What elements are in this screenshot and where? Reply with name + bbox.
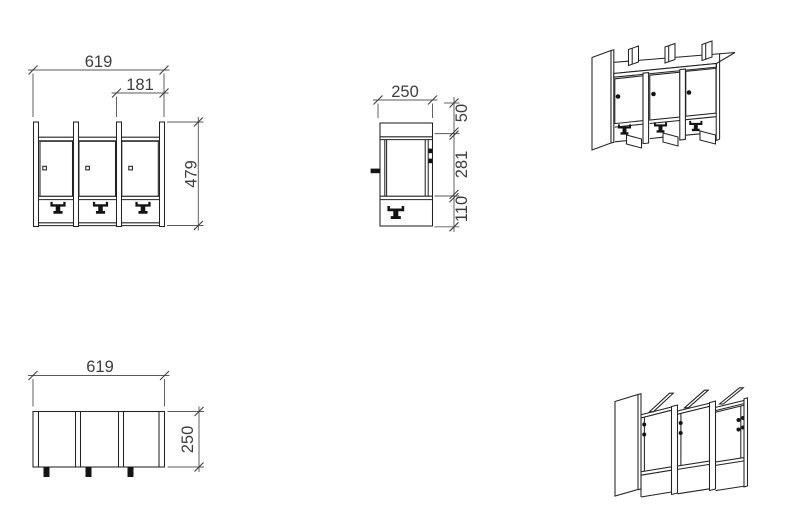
coat-hook-glyph bbox=[93, 202, 108, 214]
mount-bracket bbox=[44, 467, 50, 477]
divider-panel bbox=[710, 401, 716, 490]
hinge-dot bbox=[642, 433, 646, 437]
door-knob-side bbox=[371, 169, 381, 174]
mount-bracket bbox=[128, 467, 134, 477]
mount-bracket bbox=[86, 467, 92, 477]
side-panel-iso bbox=[592, 51, 611, 151]
hinge-dot bbox=[737, 428, 741, 432]
hinge-dot bbox=[679, 431, 683, 435]
dim-text-side-top: 50 bbox=[453, 104, 471, 122]
dim-side-chain: 50 281 110 bbox=[435, 97, 471, 232]
door-panel bbox=[122, 141, 159, 196]
dim-text-side-depth: 250 bbox=[391, 83, 419, 101]
side-panel-iso bbox=[615, 395, 638, 497]
door-knob bbox=[86, 166, 90, 170]
door-panel bbox=[678, 406, 710, 466]
iso-view-bottom[interactable] bbox=[615, 388, 748, 497]
door-panel bbox=[641, 410, 672, 472]
divider-fin bbox=[650, 388, 744, 412]
dim-text-side-bottom: 110 bbox=[453, 196, 471, 222]
side-panel bbox=[34, 122, 39, 227]
dim-plan-depth: 250 bbox=[168, 407, 205, 473]
front-view[interactable]: 619 181 479 bbox=[28, 53, 204, 231]
hinge-dot bbox=[642, 423, 646, 427]
divider-panel bbox=[643, 73, 649, 144]
hinge-dot bbox=[737, 418, 741, 422]
door-knob bbox=[616, 94, 621, 99]
dim-text-front-width: 619 bbox=[85, 53, 113, 71]
door-knob bbox=[129, 166, 133, 170]
coat-hook-glyph bbox=[654, 122, 667, 132]
plan-view[interactable]: 619 250 bbox=[28, 358, 204, 477]
coat-hook-glyph bbox=[135, 202, 150, 214]
drawing-svg: 619 181 479 bbox=[0, 0, 812, 508]
dim-text-front-bay: 181 bbox=[126, 76, 154, 94]
hinge-dot bbox=[429, 149, 432, 154]
door-panel bbox=[716, 404, 748, 462]
plan-outline bbox=[33, 412, 165, 468]
dim-text-front-height: 479 bbox=[182, 160, 200, 188]
coat-hook-glyph bbox=[50, 202, 65, 214]
dim-text-plan-width: 619 bbox=[86, 358, 114, 376]
dim-text-side-middle: 281 bbox=[453, 151, 471, 179]
coat-hook-glyph bbox=[689, 121, 702, 131]
side-view[interactable]: 250 50 281 110 bbox=[371, 83, 471, 232]
divider-panel bbox=[672, 405, 678, 495]
drawing-canvas[interactable]: 619 181 479 bbox=[0, 0, 812, 508]
door-knob bbox=[687, 90, 692, 95]
hinge-dot bbox=[679, 421, 683, 425]
side-panel-right bbox=[744, 398, 748, 487]
door-knob bbox=[651, 92, 656, 97]
door-panel bbox=[79, 141, 116, 196]
dim-plan-width: 619 bbox=[28, 358, 170, 407]
dim-front-bay-width: 181 bbox=[112, 76, 169, 117]
side-panel bbox=[160, 122, 165, 227]
door-knob bbox=[43, 166, 47, 170]
door-panel bbox=[615, 76, 643, 124]
divider-panel bbox=[74, 122, 79, 227]
hinge-dot bbox=[429, 159, 432, 164]
divider-panel bbox=[117, 122, 122, 227]
dim-text-plan-depth: 250 bbox=[179, 426, 197, 454]
iso-view-top[interactable] bbox=[592, 41, 735, 150]
divider-panel bbox=[680, 69, 686, 140]
dim-front-height: 479 bbox=[167, 117, 204, 231]
dim-side-depth: 250 bbox=[373, 83, 438, 118]
